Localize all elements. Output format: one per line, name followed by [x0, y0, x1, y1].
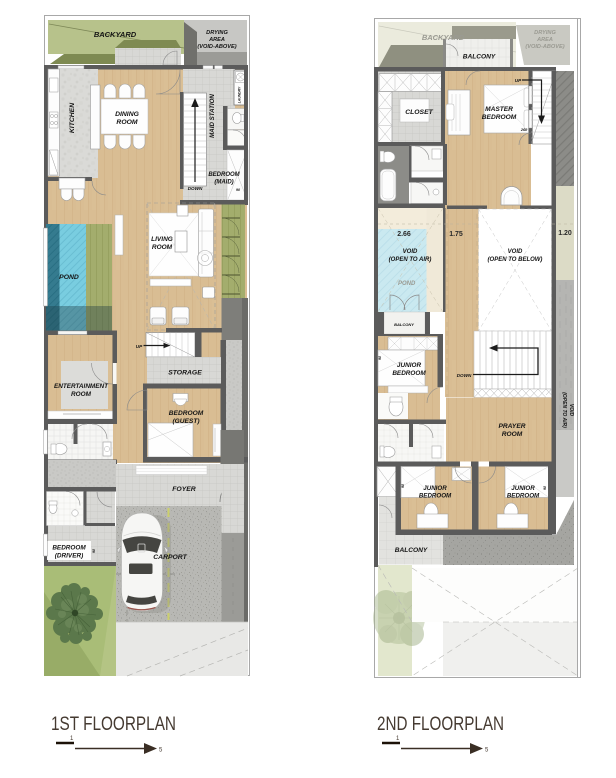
svg-text:BACKYARD: BACKYARD	[94, 30, 137, 39]
svg-text:DOWN: DOWN	[188, 186, 203, 191]
svg-text:LIVING: LIVING	[151, 236, 173, 243]
svg-text:90: 90	[401, 484, 405, 488]
svg-text:ENTERTAINMENT: ENTERTAINMENT	[54, 383, 109, 390]
svg-text:VOID: VOID	[508, 249, 523, 255]
svg-text:FOYER: FOYER	[172, 486, 196, 493]
svg-text:(OPEN TO AIR): (OPEN TO AIR)	[561, 392, 567, 428]
svg-text:90: 90	[236, 188, 240, 192]
svg-text:1ST FLOORPLAN: 1ST FLOORPLAN	[51, 713, 176, 735]
svg-text:ROOM: ROOM	[152, 244, 173, 251]
svg-text:(OPEN TO AIR): (OPEN TO AIR)	[389, 257, 432, 263]
svg-text:BEDROOM: BEDROOM	[507, 493, 540, 500]
svg-text:BEDROOM: BEDROOM	[52, 545, 86, 552]
svg-text:VOID: VOID	[568, 404, 574, 417]
svg-text:STORAGE: STORAGE	[168, 370, 202, 377]
svg-text:1.20: 1.20	[558, 230, 572, 237]
svg-text:DRYING: DRYING	[206, 30, 228, 36]
svg-text:(OPEN TO BELOW): (OPEN TO BELOW)	[488, 257, 543, 263]
svg-text:260: 260	[520, 128, 528, 132]
svg-text:1.75: 1.75	[449, 231, 463, 238]
svg-text:AREA: AREA	[208, 37, 225, 43]
svg-text:UP: UP	[515, 78, 522, 83]
svg-text:CLOSET: CLOSET	[405, 109, 433, 116]
svg-text:BEDROOM: BEDROOM	[392, 370, 426, 377]
svg-text:2ND FLOORPLAN: 2ND FLOORPLAN	[377, 713, 504, 735]
svg-text:BALCONY: BALCONY	[463, 54, 496, 61]
svg-text:JUNIOR: JUNIOR	[397, 362, 422, 369]
svg-text:90: 90	[543, 486, 547, 490]
svg-text:LAUNDRY: LAUNDRY	[238, 86, 242, 103]
svg-text:(DRIVER): (DRIVER)	[55, 553, 83, 560]
svg-text:ROOM: ROOM	[502, 431, 523, 438]
svg-text:BALCONY: BALCONY	[395, 547, 428, 554]
svg-text:KITCHEN: KITCHEN	[69, 102, 76, 133]
svg-text:POND: POND	[59, 274, 79, 281]
svg-text:BEDROOM: BEDROOM	[419, 493, 452, 500]
svg-text:DINING: DINING	[115, 111, 140, 118]
svg-text:MASTER: MASTER	[485, 106, 513, 113]
svg-text:BALCONY: BALCONY	[394, 322, 414, 327]
svg-text:2.66: 2.66	[397, 231, 411, 238]
svg-text:BEDROOM: BEDROOM	[169, 410, 204, 417]
svg-text:UP: UP	[136, 344, 143, 349]
svg-text:DRYING: DRYING	[534, 30, 556, 36]
svg-text:CARPORT: CARPORT	[153, 554, 187, 561]
svg-text:MAID STATION: MAID STATION	[209, 94, 216, 138]
svg-text:(VOID-ABOVE): (VOID-ABOVE)	[525, 44, 564, 50]
svg-text:POND: POND	[398, 281, 416, 287]
svg-text:(GUEST): (GUEST)	[172, 418, 199, 425]
svg-text:VOID: VOID	[403, 249, 418, 255]
svg-text:BEDROOM: BEDROOM	[208, 172, 240, 178]
svg-text:(MAID): (MAID)	[214, 180, 233, 186]
svg-text:AREA: AREA	[536, 37, 553, 43]
svg-text:(VOID-ABOVE): (VOID-ABOVE)	[197, 44, 236, 50]
svg-text:JUNIOR: JUNIOR	[423, 485, 447, 492]
svg-text:ROOM: ROOM	[116, 119, 137, 126]
svg-text:BEDROOM: BEDROOM	[482, 114, 517, 121]
svg-text:BACKYARD: BACKYARD	[422, 33, 465, 42]
svg-text:PRAYER: PRAYER	[499, 423, 526, 430]
svg-text:ROOM: ROOM	[71, 391, 92, 398]
svg-text:JUNIOR: JUNIOR	[511, 485, 535, 492]
svg-text:DOWN: DOWN	[457, 373, 472, 378]
svg-text:90: 90	[92, 549, 96, 553]
svg-text:90: 90	[378, 356, 382, 360]
